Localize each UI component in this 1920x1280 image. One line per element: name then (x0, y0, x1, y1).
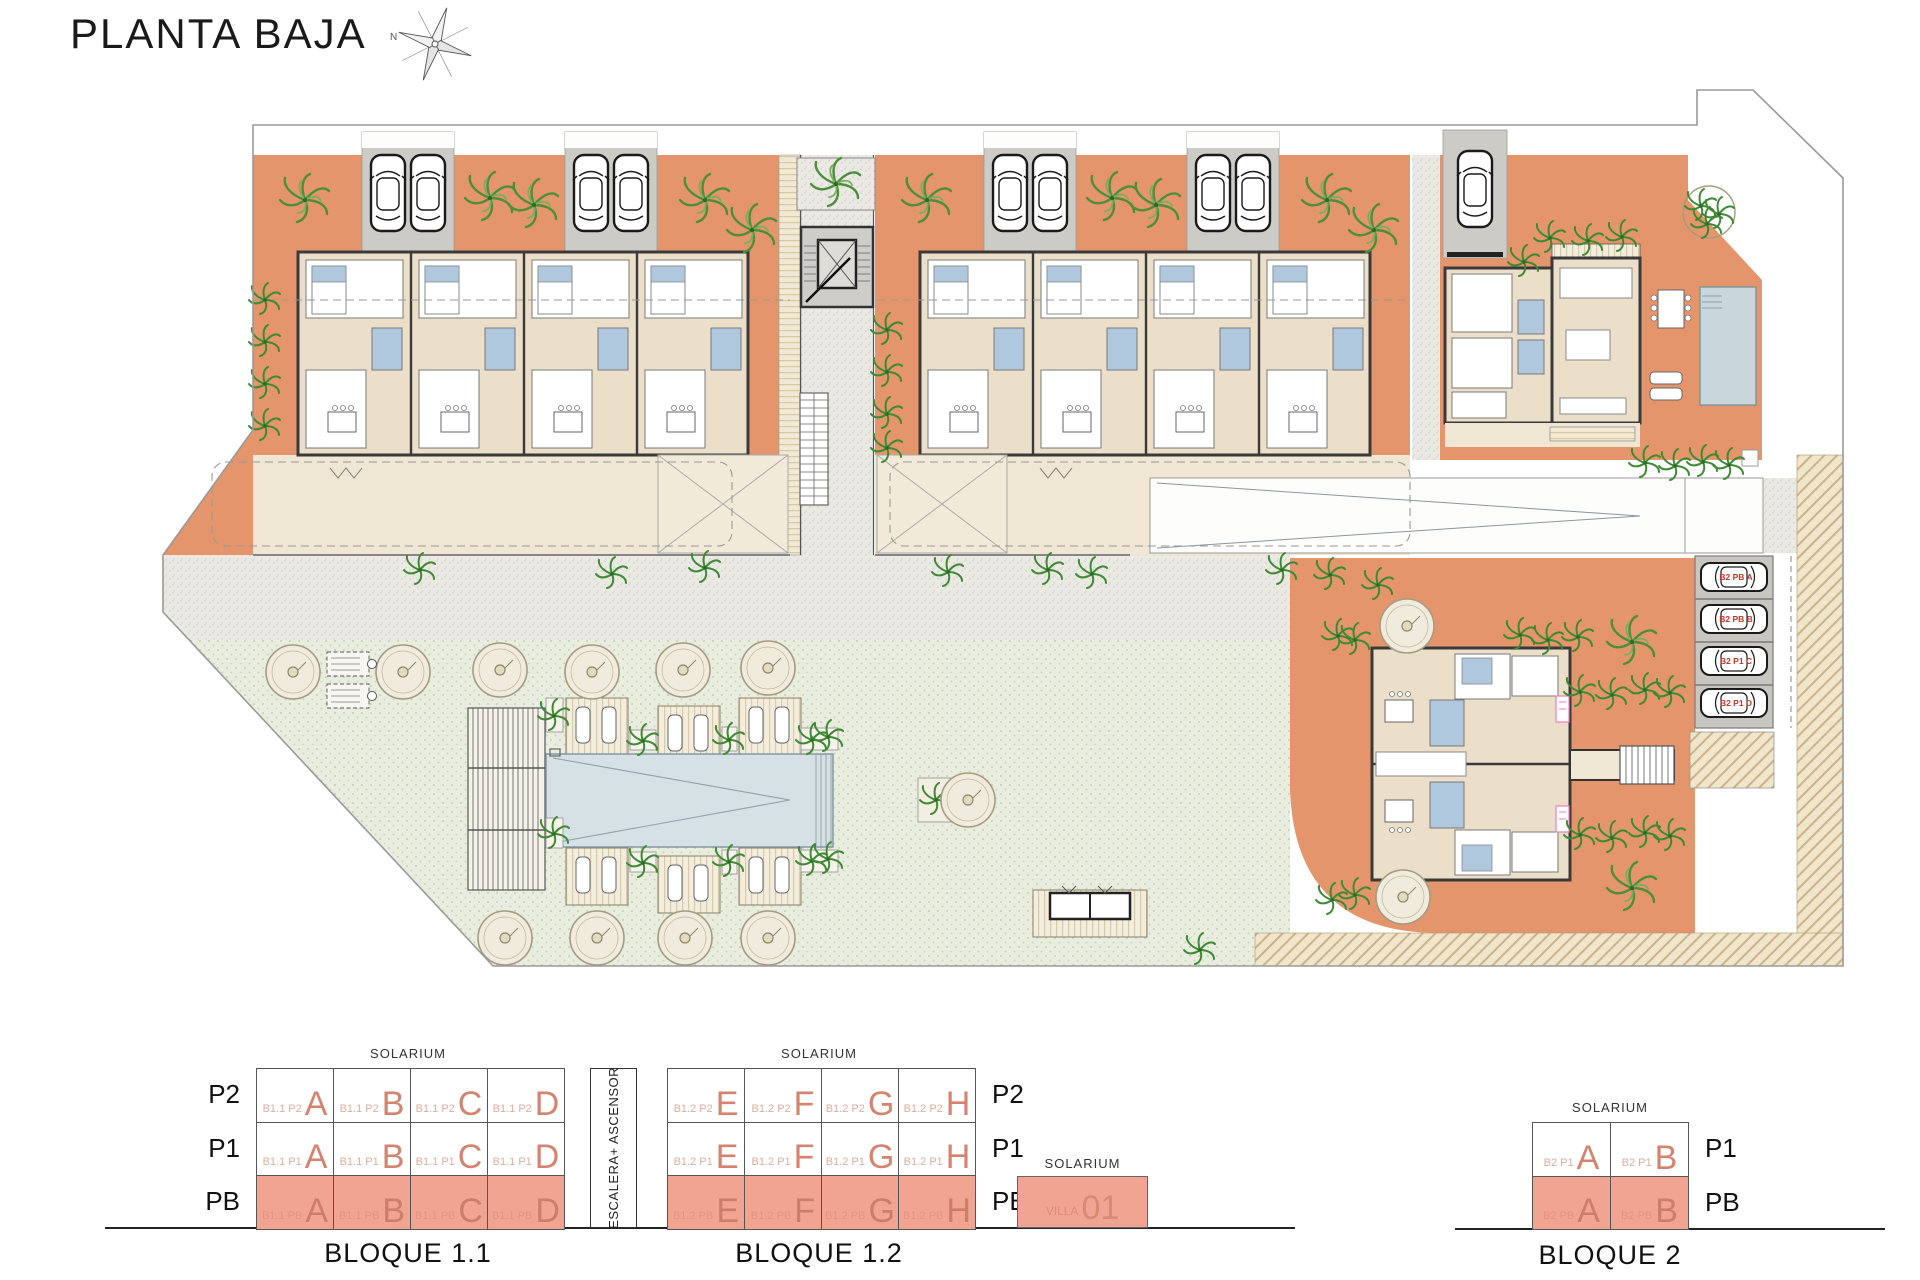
bloque-1-1-grid: B1.1 P2AB1.1 P2BB1.1 P2CB1.1 P2DB1.1 P1A… (256, 1068, 565, 1230)
unit-cell: B1.1 P1A (257, 1123, 333, 1176)
unit-cell: B1.2 PBH (899, 1176, 975, 1229)
unit-cell: B1.2 P1E (668, 1123, 744, 1176)
floor-label: PB (1705, 1176, 1775, 1230)
unit-cell: B1.1 P2B (334, 1069, 410, 1122)
unit-cell: B1.1 P1B (334, 1123, 410, 1176)
floor-label: P2 (992, 1068, 1062, 1122)
villa-pool (1700, 287, 1756, 405)
unit-cell: B1.2 P1F (745, 1123, 821, 1176)
ramp-driveway (1150, 478, 1763, 553)
bloque-1-2-building (920, 252, 1370, 455)
pool (546, 749, 833, 847)
unit-cell: B1.2 PBF (745, 1176, 821, 1229)
unit-cell: B2 PBA (1533, 1177, 1610, 1230)
unit-cell: B2 PBB (1611, 1177, 1688, 1230)
bloque-1-2-grid: B1.2 P2EB1.2 P2FB1.2 P2GB1.2 P2HB1.2 P1E… (667, 1068, 976, 1230)
parking-label: B2 PB B (1719, 614, 1753, 624)
floor-labels: P1PB (1705, 1122, 1775, 1229)
unit-cell: B1.2 PBG (822, 1176, 898, 1229)
solarium-label: SOLARIUM (256, 1046, 560, 1061)
bloque-1-1-building (298, 252, 748, 455)
unit-cell: B1.1 P1D (488, 1123, 564, 1176)
floor-label: P1 (140, 1122, 240, 1176)
unit-cell: B1.1 PBA (257, 1176, 333, 1229)
unit-cell: B1.1 P2D (488, 1069, 564, 1122)
unit-cell: B1.1 PBC (411, 1176, 487, 1229)
block-title: BLOQUE 1.2 (667, 1238, 971, 1269)
unit-cell: B1.2 P1H (899, 1123, 975, 1176)
parking-label: B2 P1 D (1720, 698, 1752, 708)
floor-label: P1 (1705, 1122, 1775, 1176)
bloque-2-grid: B2 P1AB2 P1BB2 PBAB2 PBB (1532, 1122, 1689, 1230)
unit-cell: B1.2 P2F (745, 1069, 821, 1122)
unit-cell: B1.1 P2C (411, 1069, 487, 1122)
parking-label: B2 PB A (1719, 572, 1752, 582)
solarium-label: SOLARIUM (667, 1046, 971, 1061)
unit-cell: B1.2 P2E (668, 1069, 744, 1122)
unit-cell: B2 P1A (1533, 1123, 1610, 1176)
unit-cell: B1.1 P2A (257, 1069, 333, 1122)
parking-label: B2 P1 C (1720, 656, 1752, 666)
solarium-label: SOLARIUM (1017, 1156, 1148, 1171)
floor-label: P2 (140, 1068, 240, 1122)
car-icon (1457, 151, 1493, 227)
unit-cell: B2 P1B (1611, 1123, 1688, 1176)
villa-number: 01 (1081, 1195, 1119, 1222)
floor-labels: P2P1PB (140, 1068, 240, 1229)
unit-cell: B1.1 PBB (334, 1176, 410, 1229)
block-title: BLOQUE 2 (1520, 1240, 1700, 1271)
unit-cell: B1.2 P1G (822, 1123, 898, 1176)
escalera-box: ESCALERA+ ASCENSOR (590, 1068, 637, 1228)
unit-cell: B1.2 P2H (899, 1069, 975, 1122)
pool-wc-block (1033, 886, 1147, 937)
pergola (468, 708, 545, 890)
villa-cell: VILLA 01 (1017, 1176, 1148, 1228)
unit-cell: B1.1 P1C (411, 1123, 487, 1176)
villa-code: VILLA (1046, 1204, 1079, 1218)
unit-cell: B1.2 P2G (822, 1069, 898, 1122)
solarium-label: SOLARIUM (1532, 1100, 1688, 1115)
unit-cell: B1.1 PBD (488, 1176, 564, 1229)
block-title: BLOQUE 1.1 (256, 1238, 560, 1269)
unit-cell: B1.2 PBE (668, 1176, 744, 1229)
site-plan: B2 PB A B2 PB B B2 P1 C B2 P1 D (0, 0, 1920, 1030)
floor-label: PB (140, 1175, 240, 1229)
escalera-label: ESCALERA+ ASCENSOR (606, 1067, 621, 1229)
